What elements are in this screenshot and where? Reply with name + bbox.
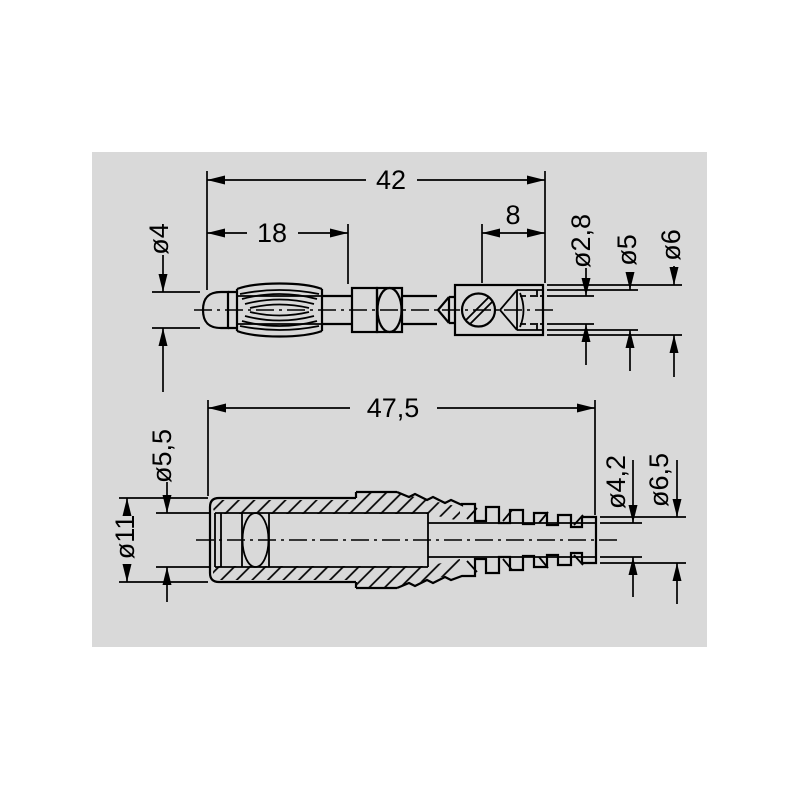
dim-label-dia5: ø5 [612, 234, 642, 266]
dim-label-18: 18 [257, 218, 287, 248]
dim-label-dia11: ø11 [110, 515, 140, 560]
drawing-page: 42 18 8 ø4 [0, 0, 800, 800]
dim-label-8: 8 [505, 200, 520, 230]
technical-drawing-canvas: 42 18 8 ø4 [0, 0, 800, 800]
dim-label-47-5: 47,5 [367, 393, 420, 423]
dim-label-dia4-2: ø4,2 [601, 455, 631, 509]
dim-label-dia2-8: ø2,8 [566, 214, 596, 268]
dim-label-42: 42 [376, 165, 406, 195]
dim-label-dia4: ø4 [144, 223, 174, 255]
dim-label-dia6: ø6 [656, 229, 686, 261]
dim-label-dia6-5: ø6,5 [644, 453, 674, 507]
dim-label-dia5-5: ø5,5 [147, 429, 177, 483]
